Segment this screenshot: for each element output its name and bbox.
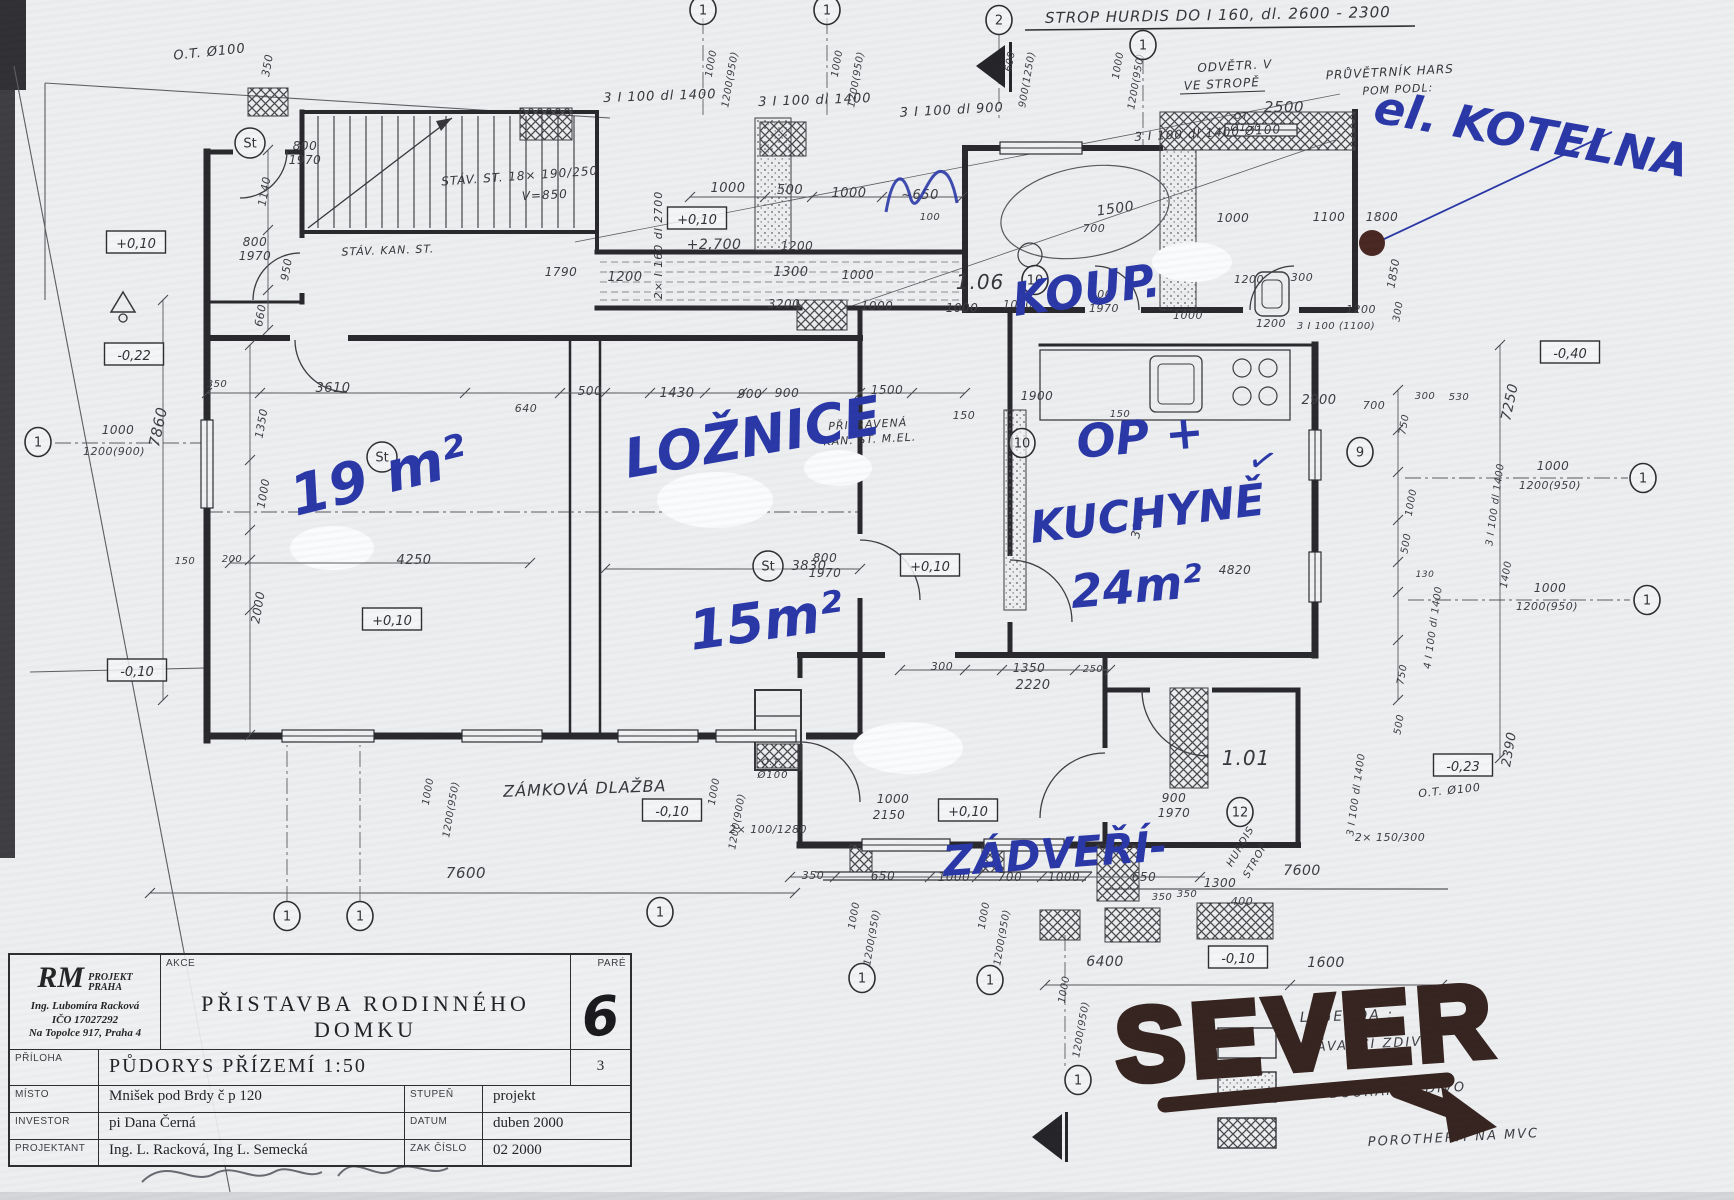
note-label: STROP HURDIS DO I 160, dl. 2600 - 2300 <box>1045 3 1391 27</box>
axis-number: 2 <box>995 14 1003 29</box>
level-value: -0,40 <box>1553 347 1587 362</box>
axis-number: 1 <box>656 906 664 921</box>
axis-marker: 1 <box>274 902 300 931</box>
dimension-label: 1970 <box>289 153 322 167</box>
axis-number: 1 <box>34 436 42 451</box>
handwritten-annotation: el. KOTELNA <box>1370 80 1693 188</box>
dimension-label: 3 I 100 (1100) <box>1297 321 1375 332</box>
handwritten-annotation: KUCHYNĚ <box>1027 473 1268 554</box>
st-marker: St <box>753 551 783 581</box>
axis-number: 1 <box>356 910 364 925</box>
dimension-label: 1000 <box>831 186 866 201</box>
axis-number: 1 <box>699 4 707 19</box>
washbasin-icon <box>1018 243 1042 267</box>
note-label: OT: <box>1234 112 1252 122</box>
dimension-label: 1000 <box>1173 309 1203 322</box>
dimension-label: 250 <box>1083 664 1104 675</box>
level-badge: +0,10 <box>939 799 998 821</box>
dimension-label: 1200(950) <box>992 909 1013 967</box>
dimension-label: 100 <box>920 212 941 223</box>
dimension-label: 500 <box>1399 532 1413 554</box>
dimension-label: 6400 <box>1086 954 1124 970</box>
dimension-label: 1140 <box>256 175 274 207</box>
dimension-label: 400 <box>1231 895 1254 908</box>
dimension-label: 200 <box>222 554 243 565</box>
axis-marker: 1 <box>647 898 673 927</box>
north-marker: SEVER <box>1112 963 1502 1143</box>
dimension-label: 700 <box>1363 399 1386 412</box>
axis-marker: 1 <box>1065 1066 1091 1095</box>
level-badge: +0,10 <box>107 231 166 253</box>
dimension-label: 1350 <box>1013 661 1046 675</box>
logo-engineer-name: Ing. Lubomíra Racková <box>10 1000 160 1014</box>
dimension-label: 500 <box>777 183 803 198</box>
dimension-label: 1200(950) <box>720 51 741 109</box>
logo-word-top: PROJEKT <box>88 972 132 983</box>
dimension-label: 150 <box>953 409 976 422</box>
dimension-label: 2500 <box>1264 98 1304 116</box>
level-value: +0,10 <box>116 237 156 252</box>
dimension-label: 600 <box>1003 50 1017 72</box>
dimension-label: 350 <box>259 53 276 77</box>
dimension-label: 2900 <box>1301 393 1336 408</box>
axis-markers: 11211111010912111111 <box>25 0 1660 1095</box>
dimension-label: 1100 <box>1313 210 1346 224</box>
dimension-label: 1350 <box>253 407 271 439</box>
level-value: +0,10 <box>372 614 412 629</box>
title-block: RM PROJEKT PRAHA Ing. Lubomíra Racková I… <box>8 953 632 1167</box>
dimension-label: 1000 <box>255 477 273 509</box>
dimension-label: 1200 <box>781 239 814 253</box>
note-label: O.T. Ø100 <box>173 41 247 64</box>
dimension-label: 1000 <box>1537 459 1570 473</box>
level-badge: -0,10 <box>643 799 702 821</box>
axis-number: 10 <box>1014 437 1031 452</box>
dimension-label: 7250 <box>1498 382 1521 422</box>
dimension-label: 1200 <box>1346 303 1376 316</box>
axis-marker: 1 <box>1130 31 1156 60</box>
handwritten-annotation: 19 m² <box>284 423 475 530</box>
level-badge: -0,10 <box>108 659 167 681</box>
axis-marker: 2 <box>986 6 1012 35</box>
dimension-label: 3200 <box>768 297 801 311</box>
dimension-label: 1200(950) <box>441 781 462 839</box>
investor-label: INVESTOR <box>10 1113 98 1127</box>
note-label: ZÁMKOVÁ DLAŽBA <box>502 776 667 801</box>
dimension-label: 800 <box>813 551 837 565</box>
dimension-label: 1400 <box>1499 560 1515 589</box>
axis-number: 1 <box>283 910 291 925</box>
axis-number: 12 <box>1232 806 1249 821</box>
dimension-label: 1000 <box>977 901 993 930</box>
investor-value: pi Dana Černá <box>99 1113 404 1132</box>
level-badge: -0,22 <box>105 343 164 365</box>
stupen-label: STUPEŇ <box>405 1086 482 1100</box>
section-triangle-icon <box>976 45 1005 88</box>
logo-ico: IČO 17027292 <box>10 1014 160 1028</box>
zakcislo-label: ZAK ČÍSLO <box>405 1140 482 1154</box>
dimension-label: 4820 <box>1219 563 1252 577</box>
dimension-label: 7600 <box>446 864 486 882</box>
dimension-label: 1000 <box>877 792 910 806</box>
dimension-label: 1000 <box>707 777 723 806</box>
st-label: St <box>761 560 774 575</box>
dimension-label: 1850 <box>1385 257 1403 289</box>
scanned-floorplan-page: 35080019701140800197095066010001200(950)… <box>0 0 1734 1200</box>
note-label: V=850 <box>521 187 568 203</box>
dimension-label: 1900 <box>1021 389 1054 403</box>
axis-number: 1 <box>1139 39 1147 54</box>
st-label: St <box>243 137 256 152</box>
dimension-label: 130 <box>1416 570 1435 580</box>
dimension-label: 1000 <box>830 49 846 78</box>
note-label: O.T. Ø100 <box>1418 781 1482 800</box>
axis-marker: 1 <box>977 966 1003 995</box>
pare-number: 6 <box>570 983 630 1049</box>
dimension-label: 300 <box>1415 391 1436 402</box>
misto-value: Mnišek pod Brdy č p 120 <box>99 1086 404 1105</box>
datum-value: duben 2000 <box>483 1113 630 1132</box>
note-label: VE STROPĚ <box>1183 74 1260 93</box>
axis-number: 9 <box>1356 446 1364 461</box>
akce-label: AKCE <box>161 955 570 969</box>
dimension-label: 1500 <box>1096 198 1136 219</box>
company-logo: RM PROJEKT PRAHA Ing. Lubomíra Racková I… <box>10 955 160 1049</box>
dimension-label: 1800 <box>1366 210 1399 224</box>
dimension-label: 7860 <box>145 405 171 448</box>
dimension-label: 950 <box>278 257 295 281</box>
axis-marker: 1 <box>849 964 875 993</box>
level-badge: -0,23 <box>1434 754 1493 776</box>
st-marker: St <box>235 128 265 158</box>
handwritten-annotation: 15m² <box>685 579 848 663</box>
dimension-label: 1000 <box>861 299 894 313</box>
dimension-label: 1790 <box>545 265 578 279</box>
dimension-label: 1200(950) <box>1126 53 1147 111</box>
axis-number: 1 <box>1643 594 1651 609</box>
dimension-label: 3 I 100 dl 1400 <box>1484 463 1506 547</box>
level-badge: +0,10 <box>668 207 727 229</box>
dimension-label: 350 <box>1152 892 1173 903</box>
dimension-label: +2,700 <box>687 237 742 253</box>
projektant-value: Ing. L. Racková, Ing L. Semecká <box>99 1140 404 1159</box>
dimension-label: 300 <box>931 660 954 673</box>
priloha-label: PŘÍLOHA <box>10 1050 98 1064</box>
axis-number: 1 <box>1074 1074 1082 1089</box>
stupen-value: projekt <box>483 1086 630 1105</box>
signature-scribble <box>142 1166 448 1182</box>
note-label: 3 I 100 dl 900 <box>899 100 1004 120</box>
note-label: Ø150 <box>1230 122 1262 134</box>
dimension-label: 1600 <box>1307 955 1345 971</box>
dimension-label: 1970 <box>809 566 842 580</box>
dimension-label: 2× 150/300 <box>1355 831 1425 844</box>
dimension-label: 750 <box>1397 413 1411 435</box>
note-label: 1.06 <box>956 270 1005 294</box>
zakcislo-value: 02 2000 <box>483 1140 630 1159</box>
dimension-label: 1300 <box>1204 876 1237 890</box>
dimension-label: 1200(950) <box>1519 479 1581 492</box>
note-label: STÁV. KAN. ST. <box>341 242 434 258</box>
dimension-label: 1200 <box>1234 273 1264 286</box>
dimension-label: 900 <box>738 387 762 401</box>
logo-monogram: RM <box>37 961 84 994</box>
axis-number: 1 <box>858 972 866 987</box>
section-triangle-icon <box>1032 1114 1062 1160</box>
dimension-label: 3610 <box>315 381 350 396</box>
dimension-label: 1000 <box>1111 51 1127 80</box>
dimension-label: 1000 <box>1217 211 1250 225</box>
dimension-label: 750 <box>1395 663 1409 685</box>
axis-marker: 1 <box>814 0 840 25</box>
dimension-label: 700 <box>1083 222 1106 235</box>
dimension-label: 800 <box>243 235 267 249</box>
dimension-label: 1200(950) <box>1071 1001 1092 1059</box>
dimension-label: 7600 <box>1283 863 1321 879</box>
dimension-label: 2390 <box>1499 731 1520 768</box>
note-label: 3 I 100 dl 1400 <box>603 87 717 106</box>
axis-number: 1 <box>823 4 831 19</box>
dimension-label: 1000 <box>710 181 745 196</box>
pare-label: PARÉ <box>571 955 630 969</box>
level-badge: -0,40 <box>1541 341 1600 363</box>
dimension-label: 1000 <box>847 901 863 930</box>
level-value: -0,10 <box>1221 952 1255 967</box>
datum-label: DATUM <box>405 1113 482 1127</box>
dimension-label: 900(1250) <box>1017 51 1038 109</box>
dimension-label: 1970 <box>239 249 272 263</box>
logo-address: Na Topolce 917, Praha 4 <box>10 1027 160 1041</box>
note-label: PRŮVĚTRNÍK HARS <box>1325 61 1454 83</box>
stove-icon <box>1233 359 1277 405</box>
legend-swatch-hatch <box>1218 1118 1276 1148</box>
dimension-label: 660 <box>252 303 269 327</box>
dimension-label: 300 <box>1291 271 1314 284</box>
dimension-label: 1000 <box>1057 975 1073 1004</box>
dimension-label: 500 <box>1392 713 1406 735</box>
dimension-label: 650 <box>871 869 895 883</box>
dimension-label: 1000 <box>1534 581 1567 595</box>
axis-marker: 9 <box>1347 438 1373 467</box>
benchmark-icon <box>111 292 135 322</box>
note-label: 2× I 160 dl 2700 <box>652 191 665 299</box>
logo-word-bottom: PRAHA <box>88 982 122 993</box>
dimension-label: 1430 <box>659 386 694 401</box>
dimension-label: 1200 <box>607 270 642 285</box>
dimension-label: 150 <box>175 556 196 567</box>
misto-label: MÍSTO <box>10 1086 98 1100</box>
level-value: -0,22 <box>117 349 151 364</box>
dimension-label: 4250 <box>396 553 431 568</box>
axis-marker: 1 <box>1630 464 1656 493</box>
dimension-label: 1200(950) <box>1516 600 1578 613</box>
projektant-label: PROJEKTANT <box>10 1140 98 1154</box>
dimension-label: 1300 <box>773 265 808 280</box>
axis-number: 1 <box>1639 472 1647 487</box>
level-badge: -0,10 <box>1209 946 1268 968</box>
level-value: -0,23 <box>1446 760 1480 775</box>
dimension-label: 800 <box>293 139 317 153</box>
level-value: -0,10 <box>655 805 689 820</box>
dimension-label: 350 <box>207 379 228 390</box>
axis-number: 1 <box>986 974 994 989</box>
level-badge: +0,10 <box>363 608 422 630</box>
axis-marker: 10 <box>1009 429 1035 458</box>
note-label: 1.01 <box>1222 746 1271 770</box>
dimension-label: 1000 <box>842 268 875 282</box>
dimension-label: 3 I 100 dl 1400 <box>1345 753 1367 837</box>
dimension-label: 1000 <box>1404 488 1420 517</box>
axis-marker: 12 <box>1227 798 1253 827</box>
level-value: +0,10 <box>910 560 950 575</box>
level-badge: +0,10 <box>901 554 960 576</box>
dimension-label: 1000 <box>704 49 720 78</box>
dimension-label: 1000 <box>946 301 979 315</box>
dimension-label: 500 <box>578 384 602 398</box>
dimension-label: 1000 <box>102 423 135 437</box>
axis-marker: 1 <box>25 428 51 457</box>
handwritten-annotation: 24m² <box>1068 554 1204 619</box>
dimension-label: 1970 <box>1158 806 1191 820</box>
dark-dot <box>1359 230 1385 256</box>
dimension-label: 1200(900) <box>83 445 145 458</box>
priloha-number: 3 <box>570 1050 630 1085</box>
dimension-label: 1200(900) <box>727 793 748 851</box>
dimension-label: 2150 <box>873 808 906 822</box>
level-value: -0,10 <box>120 665 154 680</box>
dimension-label: 4 I 100 dl 1400 <box>1422 586 1444 670</box>
axis-marker: 1 <box>690 0 716 25</box>
handwritten-annotation: OP + <box>1074 404 1206 469</box>
handwritten-annotation: ✓ <box>1244 438 1282 484</box>
dimension-label: 530 <box>1449 392 1470 403</box>
level-value: +0,10 <box>677 213 717 228</box>
dimension-label: 350 <box>802 869 825 882</box>
dimension-label: 2000 <box>248 590 267 624</box>
axis-marker: 1 <box>347 902 373 931</box>
note-label: Ø100 <box>757 769 789 781</box>
drawing-title: PŮDORYS PŘÍZEMÍ 1:50 <box>99 1050 570 1078</box>
dimension-label: 1200 <box>1256 317 1286 330</box>
note-label: STÁV. ST. 18× 190/250 <box>441 163 599 189</box>
dimension-label: 2220 <box>1015 678 1050 693</box>
dimension-label: 900 <box>1162 791 1186 805</box>
level-value: +0,10 <box>948 805 988 820</box>
axis-marker: 1 <box>1634 586 1660 615</box>
dimension-label: 350 <box>1177 889 1198 900</box>
dimension-label: 300 <box>1391 300 1405 322</box>
project-title: PŘISTAVBA RODINNÉHO DOMKU <box>161 991 570 1043</box>
dimension-label: 640 <box>515 402 538 415</box>
dimension-label: 1200(950) <box>862 909 883 967</box>
dimension-label: 1000 <box>421 777 437 806</box>
note-label: O.T. <box>762 758 783 768</box>
note-label: ODVĚTR. V <box>1197 56 1273 75</box>
